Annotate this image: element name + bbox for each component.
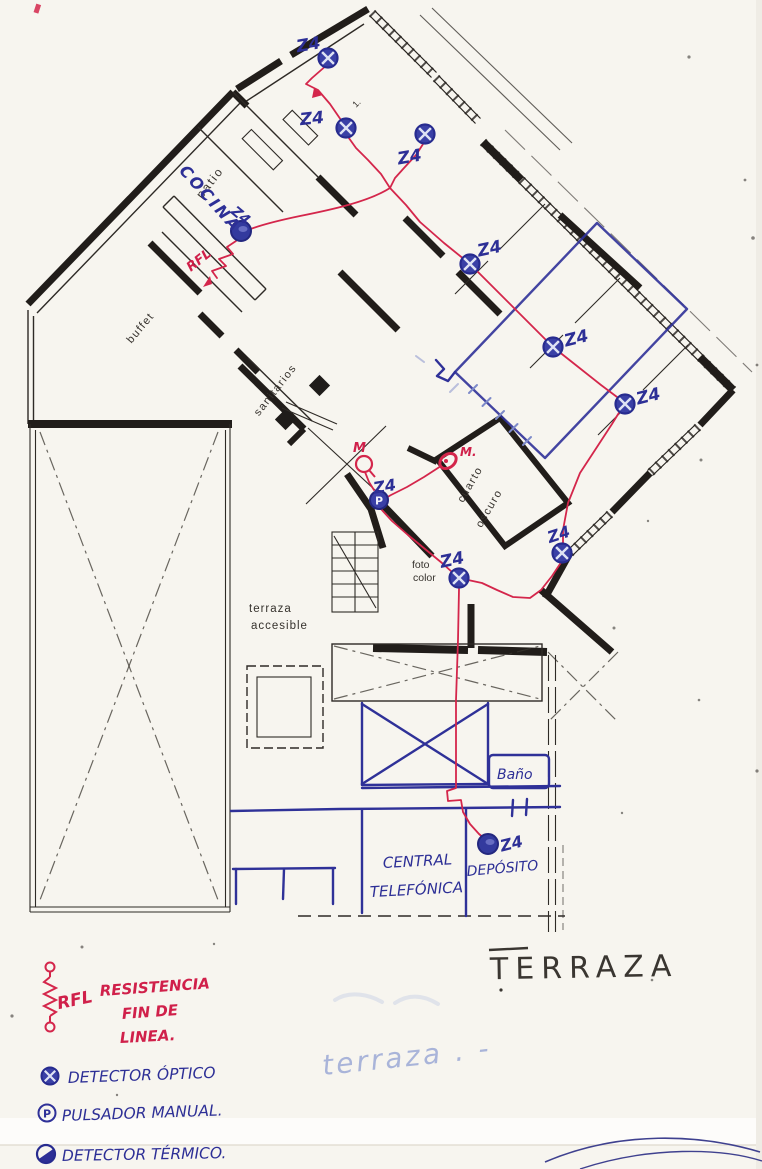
bano-label: Baño [497, 767, 533, 783]
room-label-terraza-accesible-2: accesible [251, 620, 308, 632]
optical-detector-icon [478, 834, 498, 854]
optical-detector-icon [616, 395, 635, 414]
z4-label: Z4 [298, 108, 325, 131]
terraza-text: TERRAZA [489, 949, 679, 987]
optical-detector-icon [416, 125, 435, 144]
optical-detector-icon [461, 255, 480, 274]
m2-label: M. [460, 445, 477, 459]
optical-detector-icon [553, 544, 572, 563]
room-label-color: color [413, 572, 436, 584]
z4-label: Z4 [371, 475, 398, 498]
legend-thermal-label: DETECTOR TÉRMICO. [62, 1143, 227, 1165]
central-label-1: CENTRAL [382, 850, 452, 872]
optical-detector-icon [450, 569, 469, 588]
optical-detector-icon [42, 1068, 59, 1085]
m1-label: M [353, 441, 366, 456]
legend-pushbutton-letter: P [43, 1108, 51, 1121]
optical-detector-icon [337, 119, 356, 138]
legend-rfl-line3: LINEA. [119, 1026, 175, 1047]
optical-detector-icon [544, 338, 563, 357]
floorplan-scan: patio buffet sanitarios cuarto oscuro fo… [0, 0, 762, 1169]
room-label-foto: foto [412, 559, 430, 571]
scanned-floorplan-page: patio buffet sanitarios cuarto oscuro fo… [0, 0, 762, 1169]
room-label-terraza-accesible-1: terraza [249, 603, 292, 615]
